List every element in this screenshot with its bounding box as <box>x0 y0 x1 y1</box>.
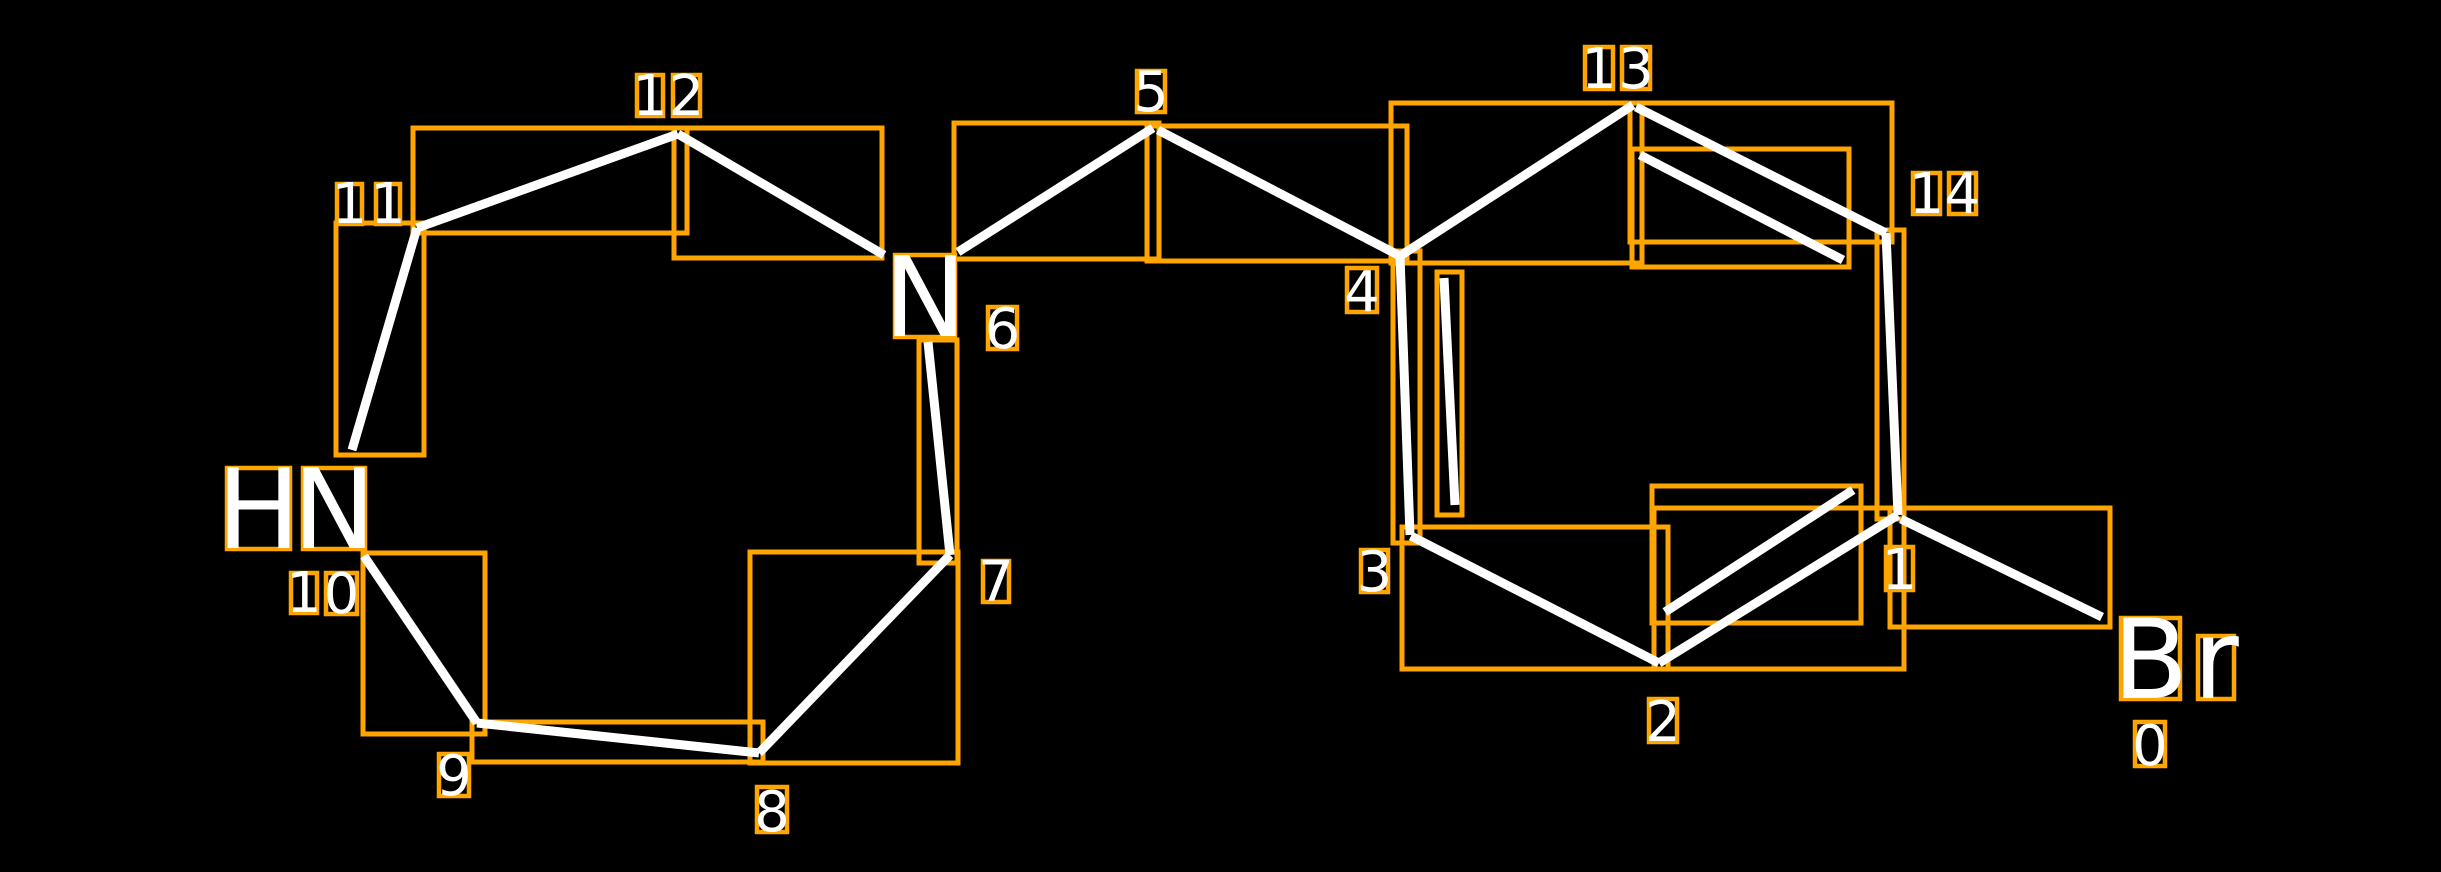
index-label-char-6: 6 <box>985 297 1021 362</box>
index-label-char-11: 1 <box>370 172 406 237</box>
index-label-char-11: 1 <box>332 172 368 237</box>
molecule-annotation-viewer: 01234567891011121314HNNBr <box>0 0 2441 872</box>
index-label-char-9: 9 <box>436 744 472 809</box>
element-label-char-HN: N <box>292 446 375 575</box>
index-label-char-13: 3 <box>1618 37 1654 102</box>
index-label-char-5: 5 <box>1133 60 1169 125</box>
index-label-char-7: 7 <box>978 550 1014 615</box>
canvas-background <box>0 0 2441 872</box>
index-label-char-1: 1 <box>1882 538 1918 603</box>
index-label-char-13: 1 <box>1581 37 1617 102</box>
index-label-char-12: 1 <box>632 64 668 129</box>
index-label-char-3: 3 <box>1357 540 1393 605</box>
index-label-char-14: 4 <box>1945 162 1981 227</box>
element-label-char-Br: B <box>2112 596 2188 725</box>
element-label-char-HN: H <box>217 446 300 575</box>
index-label-char-12: 2 <box>669 64 705 129</box>
element-label-char-Br: r <box>2193 596 2239 725</box>
molecule-svg: 01234567891011121314HNNBr <box>0 0 2441 872</box>
index-label-char-8: 8 <box>754 780 790 845</box>
index-label-char-14: 1 <box>1909 162 1945 227</box>
index-label-char-4: 4 <box>1344 260 1380 325</box>
index-label-char-2: 2 <box>1645 690 1681 755</box>
element-label-char-N: N <box>883 234 966 363</box>
